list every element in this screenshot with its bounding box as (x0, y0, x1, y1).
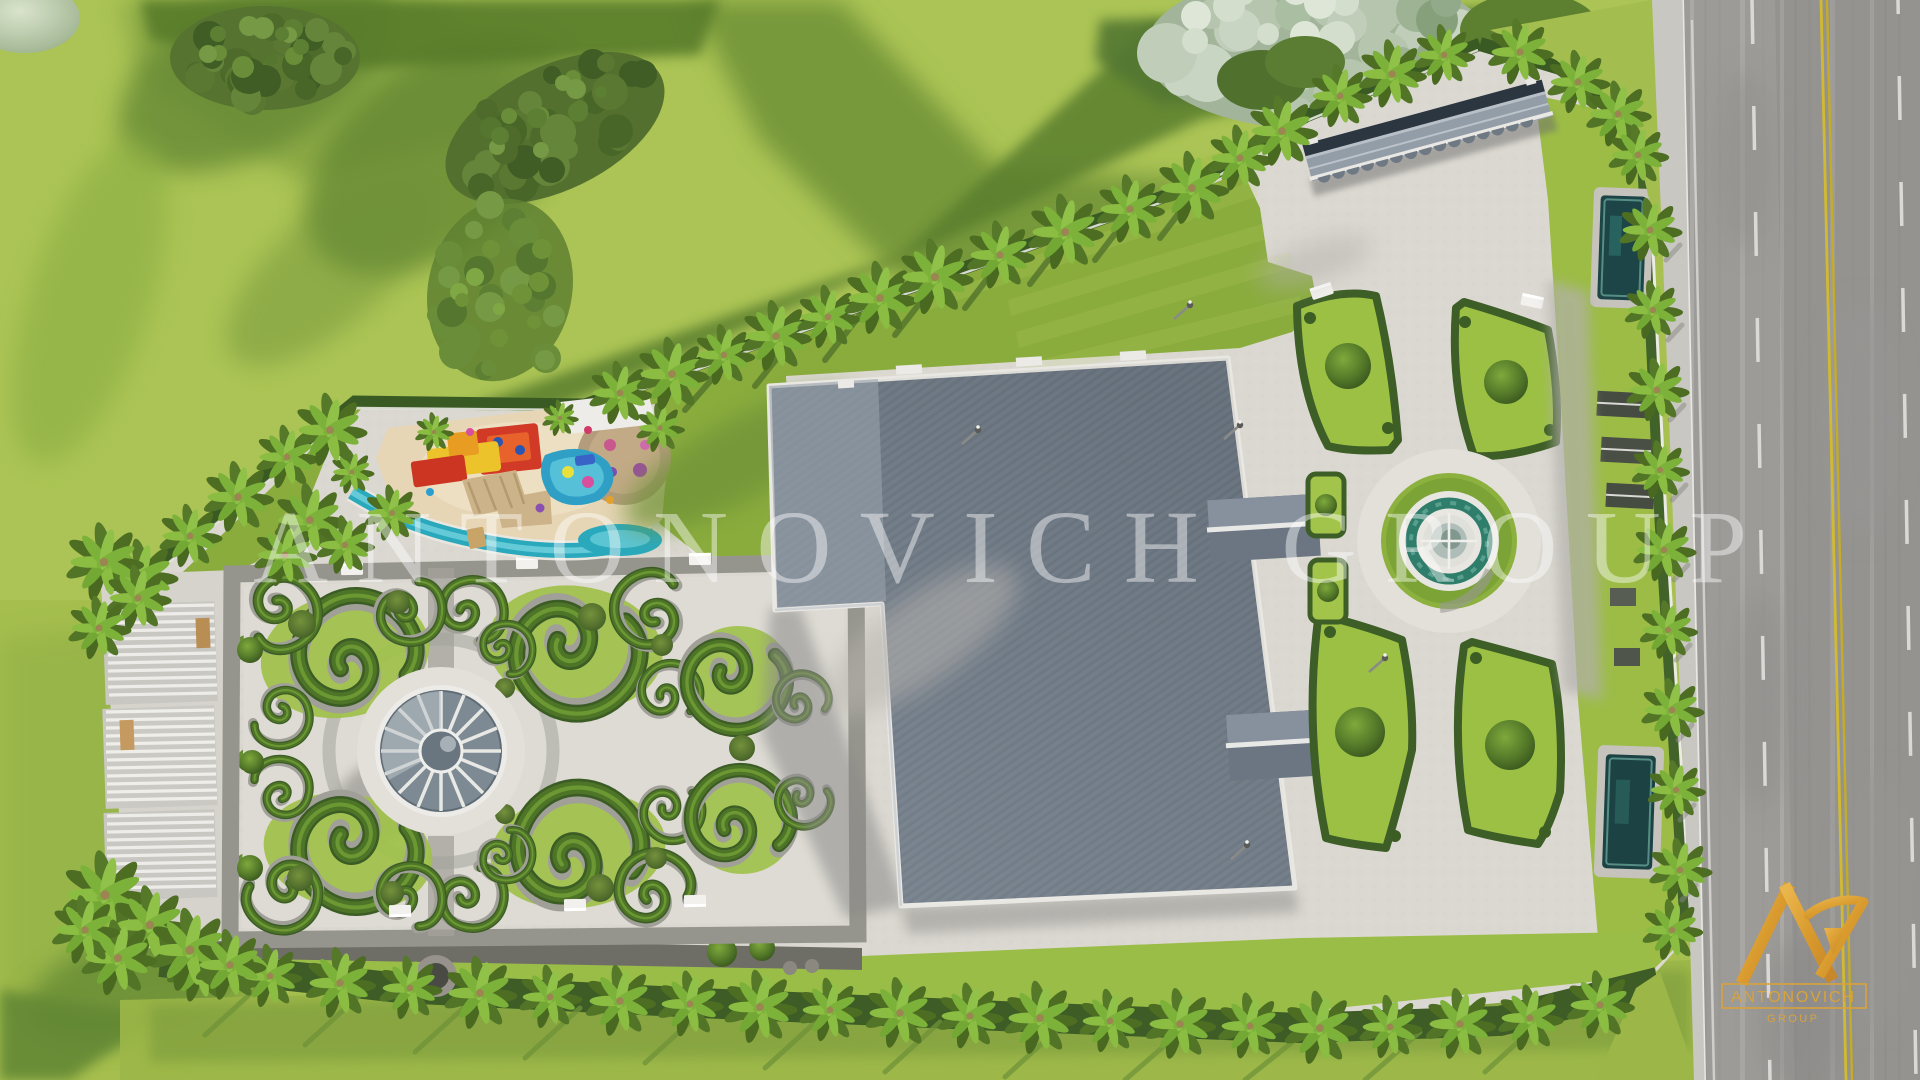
svg-text:GROUP: GROUP (1767, 1013, 1821, 1025)
svg-text:ANTONOVICH GROUP: ANTONOVICH GROUP (253, 490, 1757, 605)
svg-text:ANTONOVICH: ANTONOVICH (1731, 989, 1857, 1006)
